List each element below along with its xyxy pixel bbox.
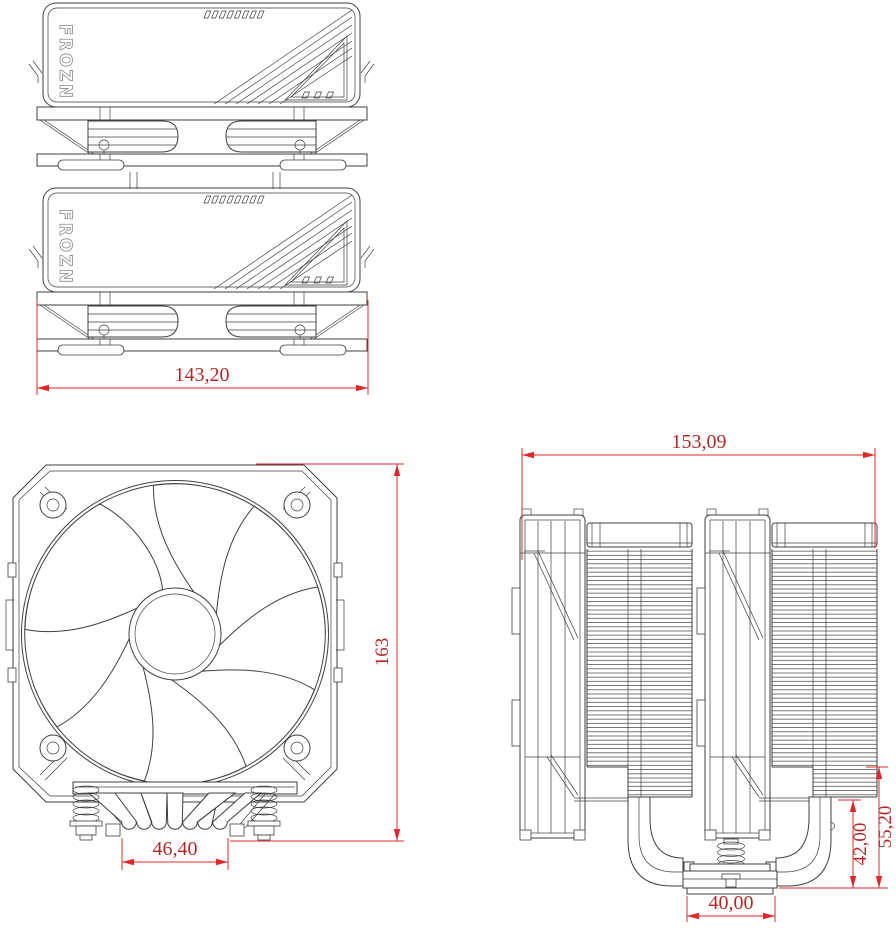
- dim-front-base-width-label: 46,40: [153, 838, 198, 860]
- dim-ram-clearance-label: 42,00: [850, 823, 871, 866]
- front-view: 163 46,40: [0, 447, 404, 870]
- dim-side-width-label: 153,09: [672, 431, 727, 453]
- top-view: 143,20: [29, 3, 374, 395]
- dimension-base-width: 40,00: [687, 892, 775, 922]
- dim-fin-clearance-label: 55,20: [875, 806, 896, 849]
- base-block: [683, 862, 777, 894]
- inter-unit-connectors: [130, 172, 280, 189]
- dim-front-height-label: 163: [372, 638, 393, 667]
- heat-pipes-front: [89, 793, 261, 836]
- cpu-cooler-technical-drawing: FROZN: [0, 0, 896, 928]
- side-view: 153,09 42,00 55,20 40,00: [512, 431, 896, 922]
- fan-hub: [129, 588, 221, 680]
- dimension-front-base-width: 46,40: [122, 838, 228, 870]
- dim-base-width-label: 40,00: [709, 892, 754, 914]
- drawing-svg: FROZN: [0, 0, 896, 928]
- dimension-ram-clearance: 42,00: [838, 800, 871, 888]
- dim-top-width-label: 143,20: [175, 364, 230, 386]
